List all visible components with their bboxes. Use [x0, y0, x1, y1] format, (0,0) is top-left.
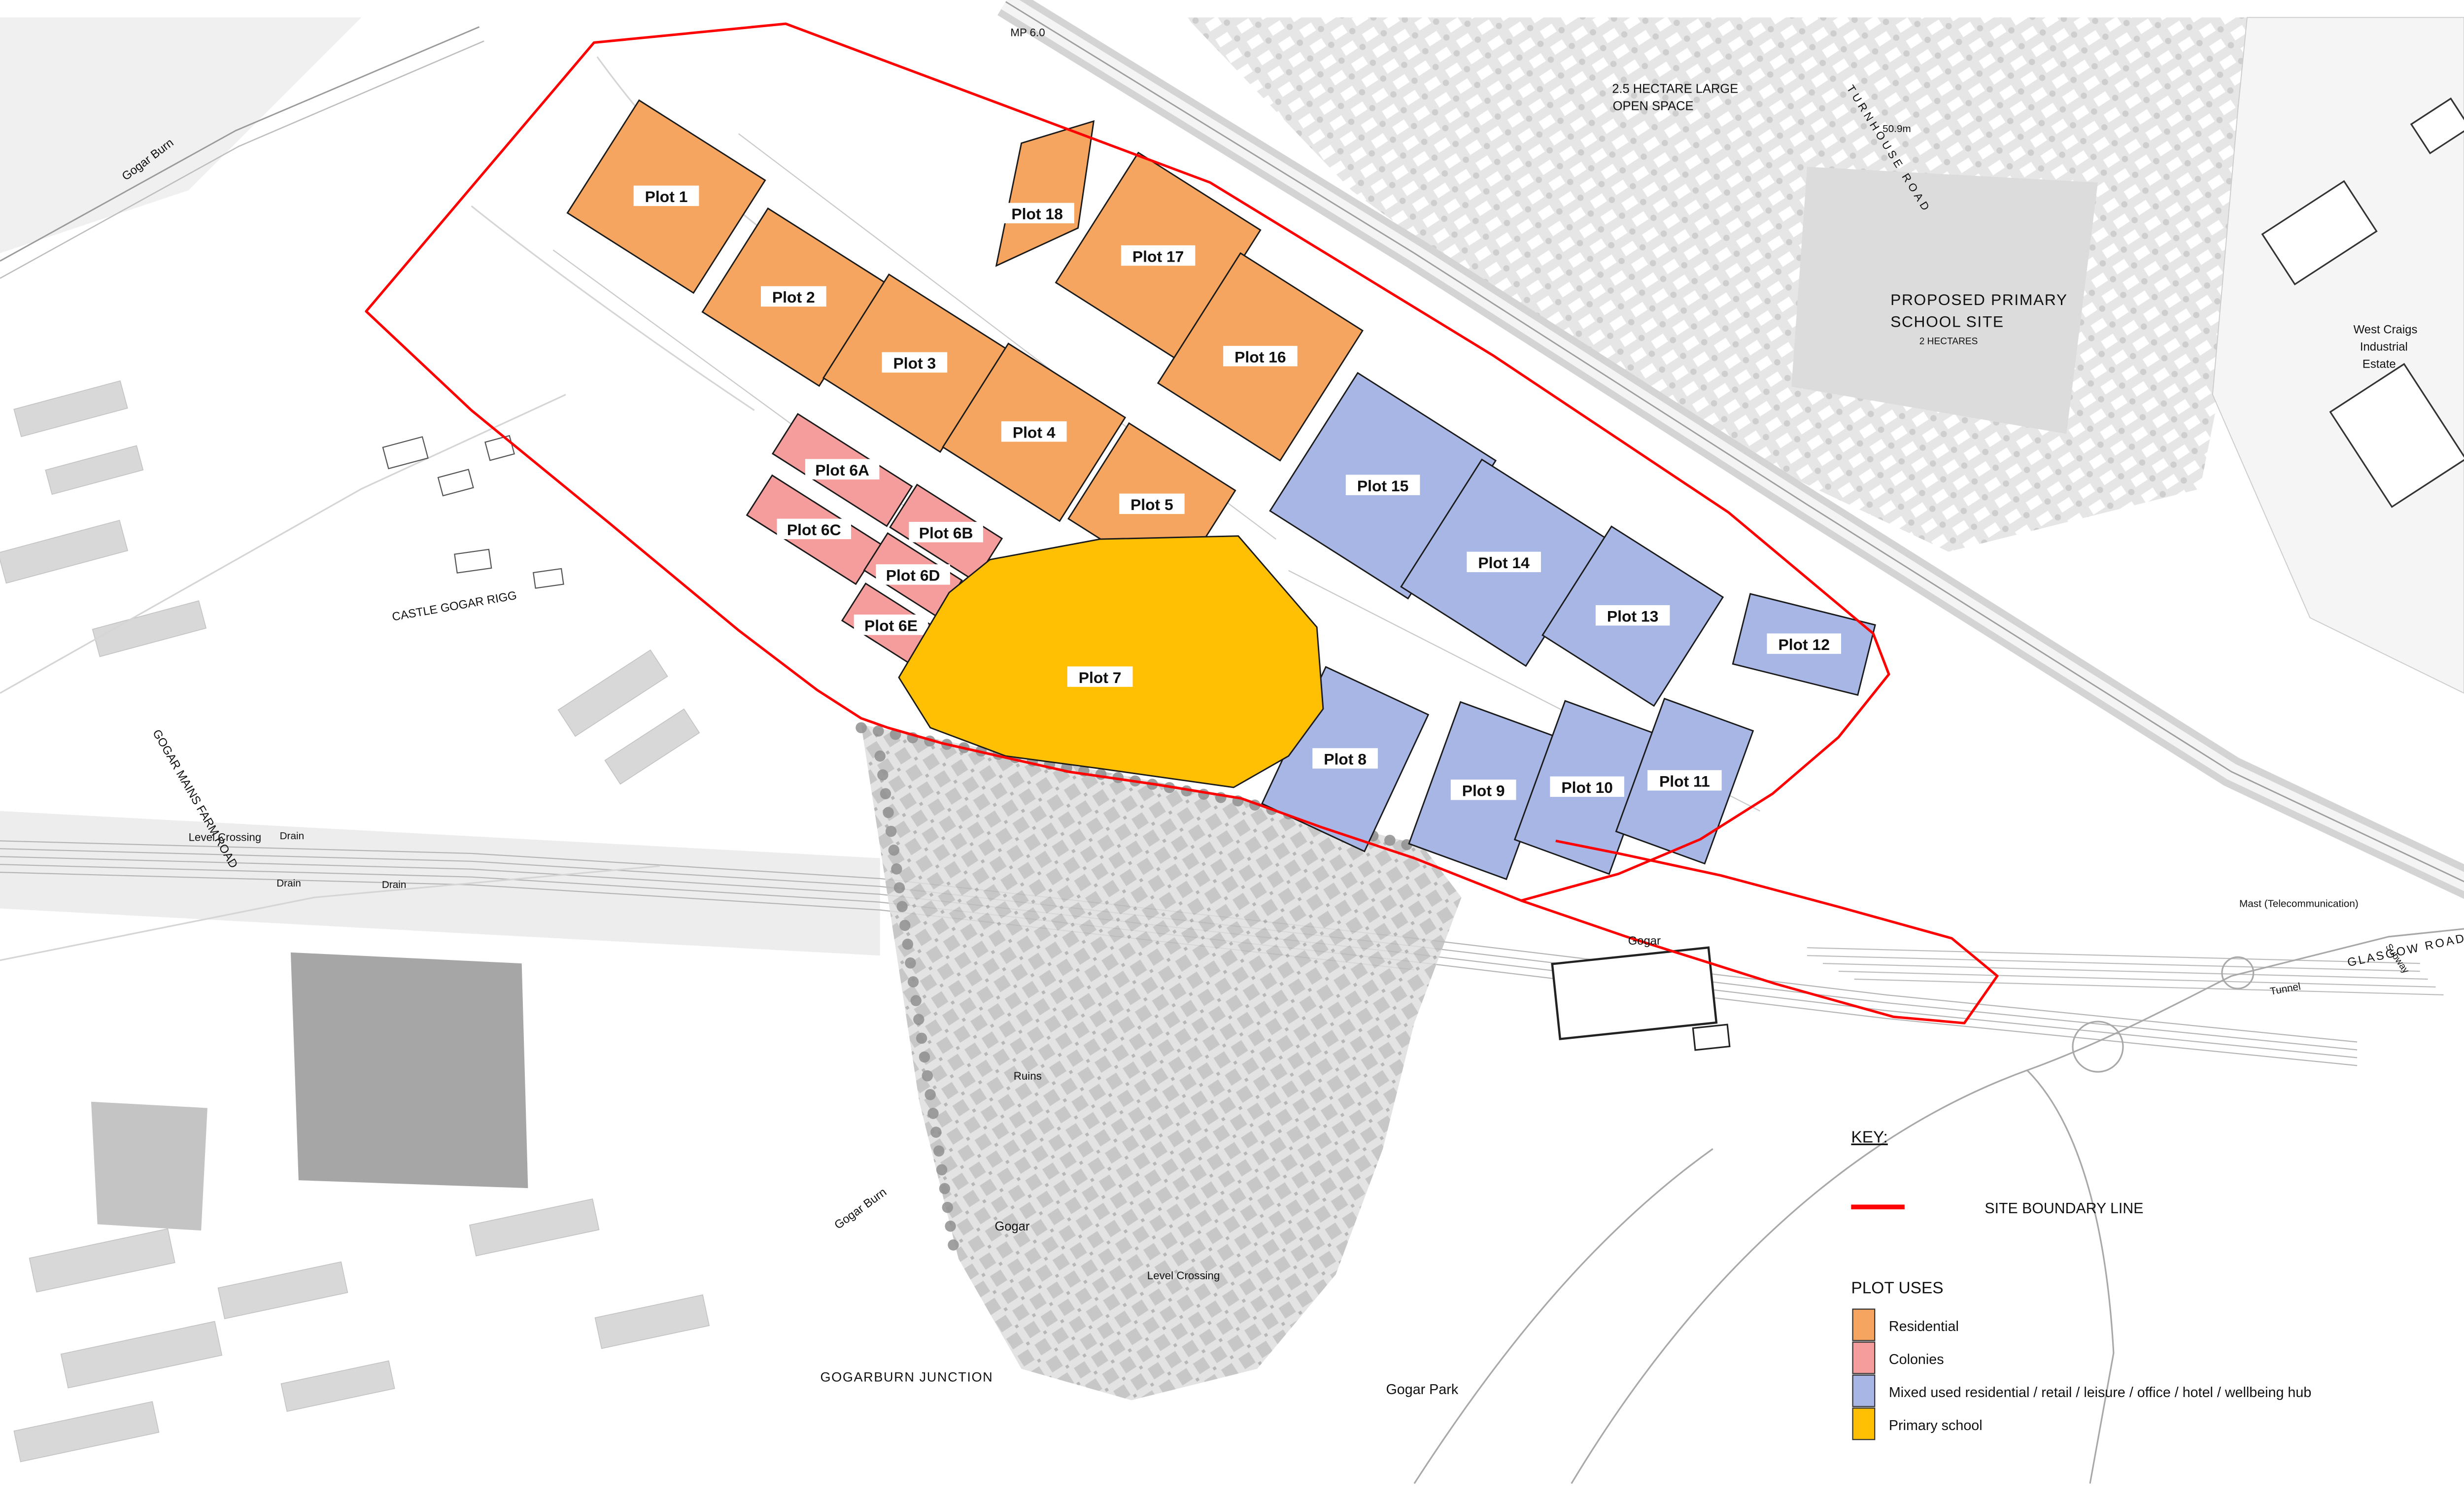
label-open-space-l2: OPEN SPACE [1613, 100, 1694, 113]
legend-plot-uses-title: PLOT USES [1851, 1279, 1943, 1297]
castle-gogar-buildings [383, 436, 564, 588]
legend-label-mixed: Mixed used residential / retail / leisur… [1889, 1385, 2311, 1400]
plot-label-p7: Plot 7 [1079, 669, 1122, 686]
plot-label-p13: Plot 13 [1607, 608, 1659, 625]
legend-key-title: KEY: [1851, 1128, 1887, 1147]
plot-label-p4: Plot 4 [1013, 423, 1056, 441]
plot-label-p10: Plot 10 [1561, 779, 1613, 796]
label-gogar-park: Gogar Park [1386, 1382, 1458, 1398]
plot-label-p15: Plot 15 [1357, 477, 1409, 495]
legend-boundary-label: SITE BOUNDARY LINE [1985, 1200, 2143, 1217]
plot-label-p5: Plot 5 [1130, 496, 1173, 513]
plot-label-p3: Plot 3 [893, 354, 936, 372]
label-industrial-l3: Estate [2362, 358, 2396, 371]
plot-label-p6a: Plot 6A [815, 461, 869, 479]
depot-building [1552, 948, 1716, 1039]
legend: KEY: SITE BOUNDARY LINE PLOT USES Reside… [1851, 1128, 2311, 1440]
label-drain-3: Drain [382, 879, 407, 890]
plot-label-p14: Plot 14 [1478, 554, 1530, 572]
plot-label-p2: Plot 2 [772, 288, 815, 306]
depot-annex [1693, 1024, 1729, 1050]
site-plan-map: Plot 1Plot 2Plot 3Plot 4Plot 5Plot 18Plo… [0, 0, 2464, 1501]
grey-field-west-2 [91, 1102, 207, 1230]
plot-label-p9: Plot 9 [1462, 782, 1505, 799]
label-level-crossing-west: Level Crossing [189, 831, 262, 843]
label-school-l3: 2 HECTARES [1919, 337, 1978, 347]
label-drain-1: Drain [280, 830, 305, 842]
label-school-l1: PROPOSED PRIMARY [1890, 291, 2068, 308]
label-gogar-station: Gogar [1628, 934, 1661, 948]
label-gogar-burn-lower: Gogar Burn [832, 1186, 889, 1232]
label-level-crossing-mid: Level Crossing [1147, 1269, 1220, 1282]
label-gogar-village: Gogar [994, 1220, 1029, 1233]
plot-label-p6b: Plot 6B [919, 524, 973, 542]
label-industrial-l1: West Craigs [2354, 323, 2418, 336]
plot-label-p6d: Plot 6D [886, 567, 940, 584]
plot-group-p11: Plot 11 [1616, 699, 1753, 864]
legend-swatch-residential [1853, 1309, 1875, 1341]
railway-sidings-east [1807, 948, 2443, 995]
legend-swatch-colonies [1853, 1342, 1875, 1374]
plot-group-p18: Plot 18 [996, 121, 1094, 266]
label-mp-marker: MP 6.0 [1010, 27, 1045, 39]
label-drain-2: Drain [276, 878, 301, 889]
label-gogarburn-junction: GOGARBURN JUNCTION [821, 1369, 993, 1384]
dark-field-west [291, 953, 528, 1188]
plot-label-p18: Plot 18 [1011, 205, 1063, 223]
plot-label-p8: Plot 8 [1324, 750, 1367, 768]
plot-label-p6e: Plot 6E [864, 617, 918, 635]
field-top-left [0, 17, 361, 253]
plot-label-p16: Plot 16 [1234, 348, 1286, 366]
plot-region-p18 [996, 121, 1094, 266]
label-mast: Mast (Telecommunication) [2239, 898, 2359, 909]
plot-group-p12: Plot 12 [1733, 594, 1875, 695]
label-spot-height: 50.9m [1882, 123, 1911, 135]
plot-label-p12: Plot 12 [1778, 636, 1830, 653]
legend-label-residential: Residential [1889, 1319, 1959, 1334]
plot-label-p17: Plot 17 [1132, 247, 1184, 265]
legend-label-school: Primary school [1889, 1418, 1983, 1433]
legend-label-colonies: Colonies [1889, 1352, 1944, 1367]
plot-label-p11: Plot 11 [1659, 772, 1710, 790]
legend-swatch-school [1853, 1408, 1875, 1440]
label-school-l2: SCHOOL SITE [1890, 313, 2004, 331]
legend-swatch-mixed [1853, 1375, 1875, 1407]
label-industrial-l2: Industrial [2360, 340, 2408, 353]
label-castle-gogar-rigg: CASTLE GOGAR RIGG [391, 589, 518, 624]
label-open-space-l1: 2.5 HECTARE LARGE [1612, 82, 1738, 96]
plot-label-p6c: Plot 6C [787, 521, 841, 539]
plot-label-p1: Plot 1 [645, 188, 688, 205]
label-ruins: Ruins [1014, 1070, 1042, 1082]
